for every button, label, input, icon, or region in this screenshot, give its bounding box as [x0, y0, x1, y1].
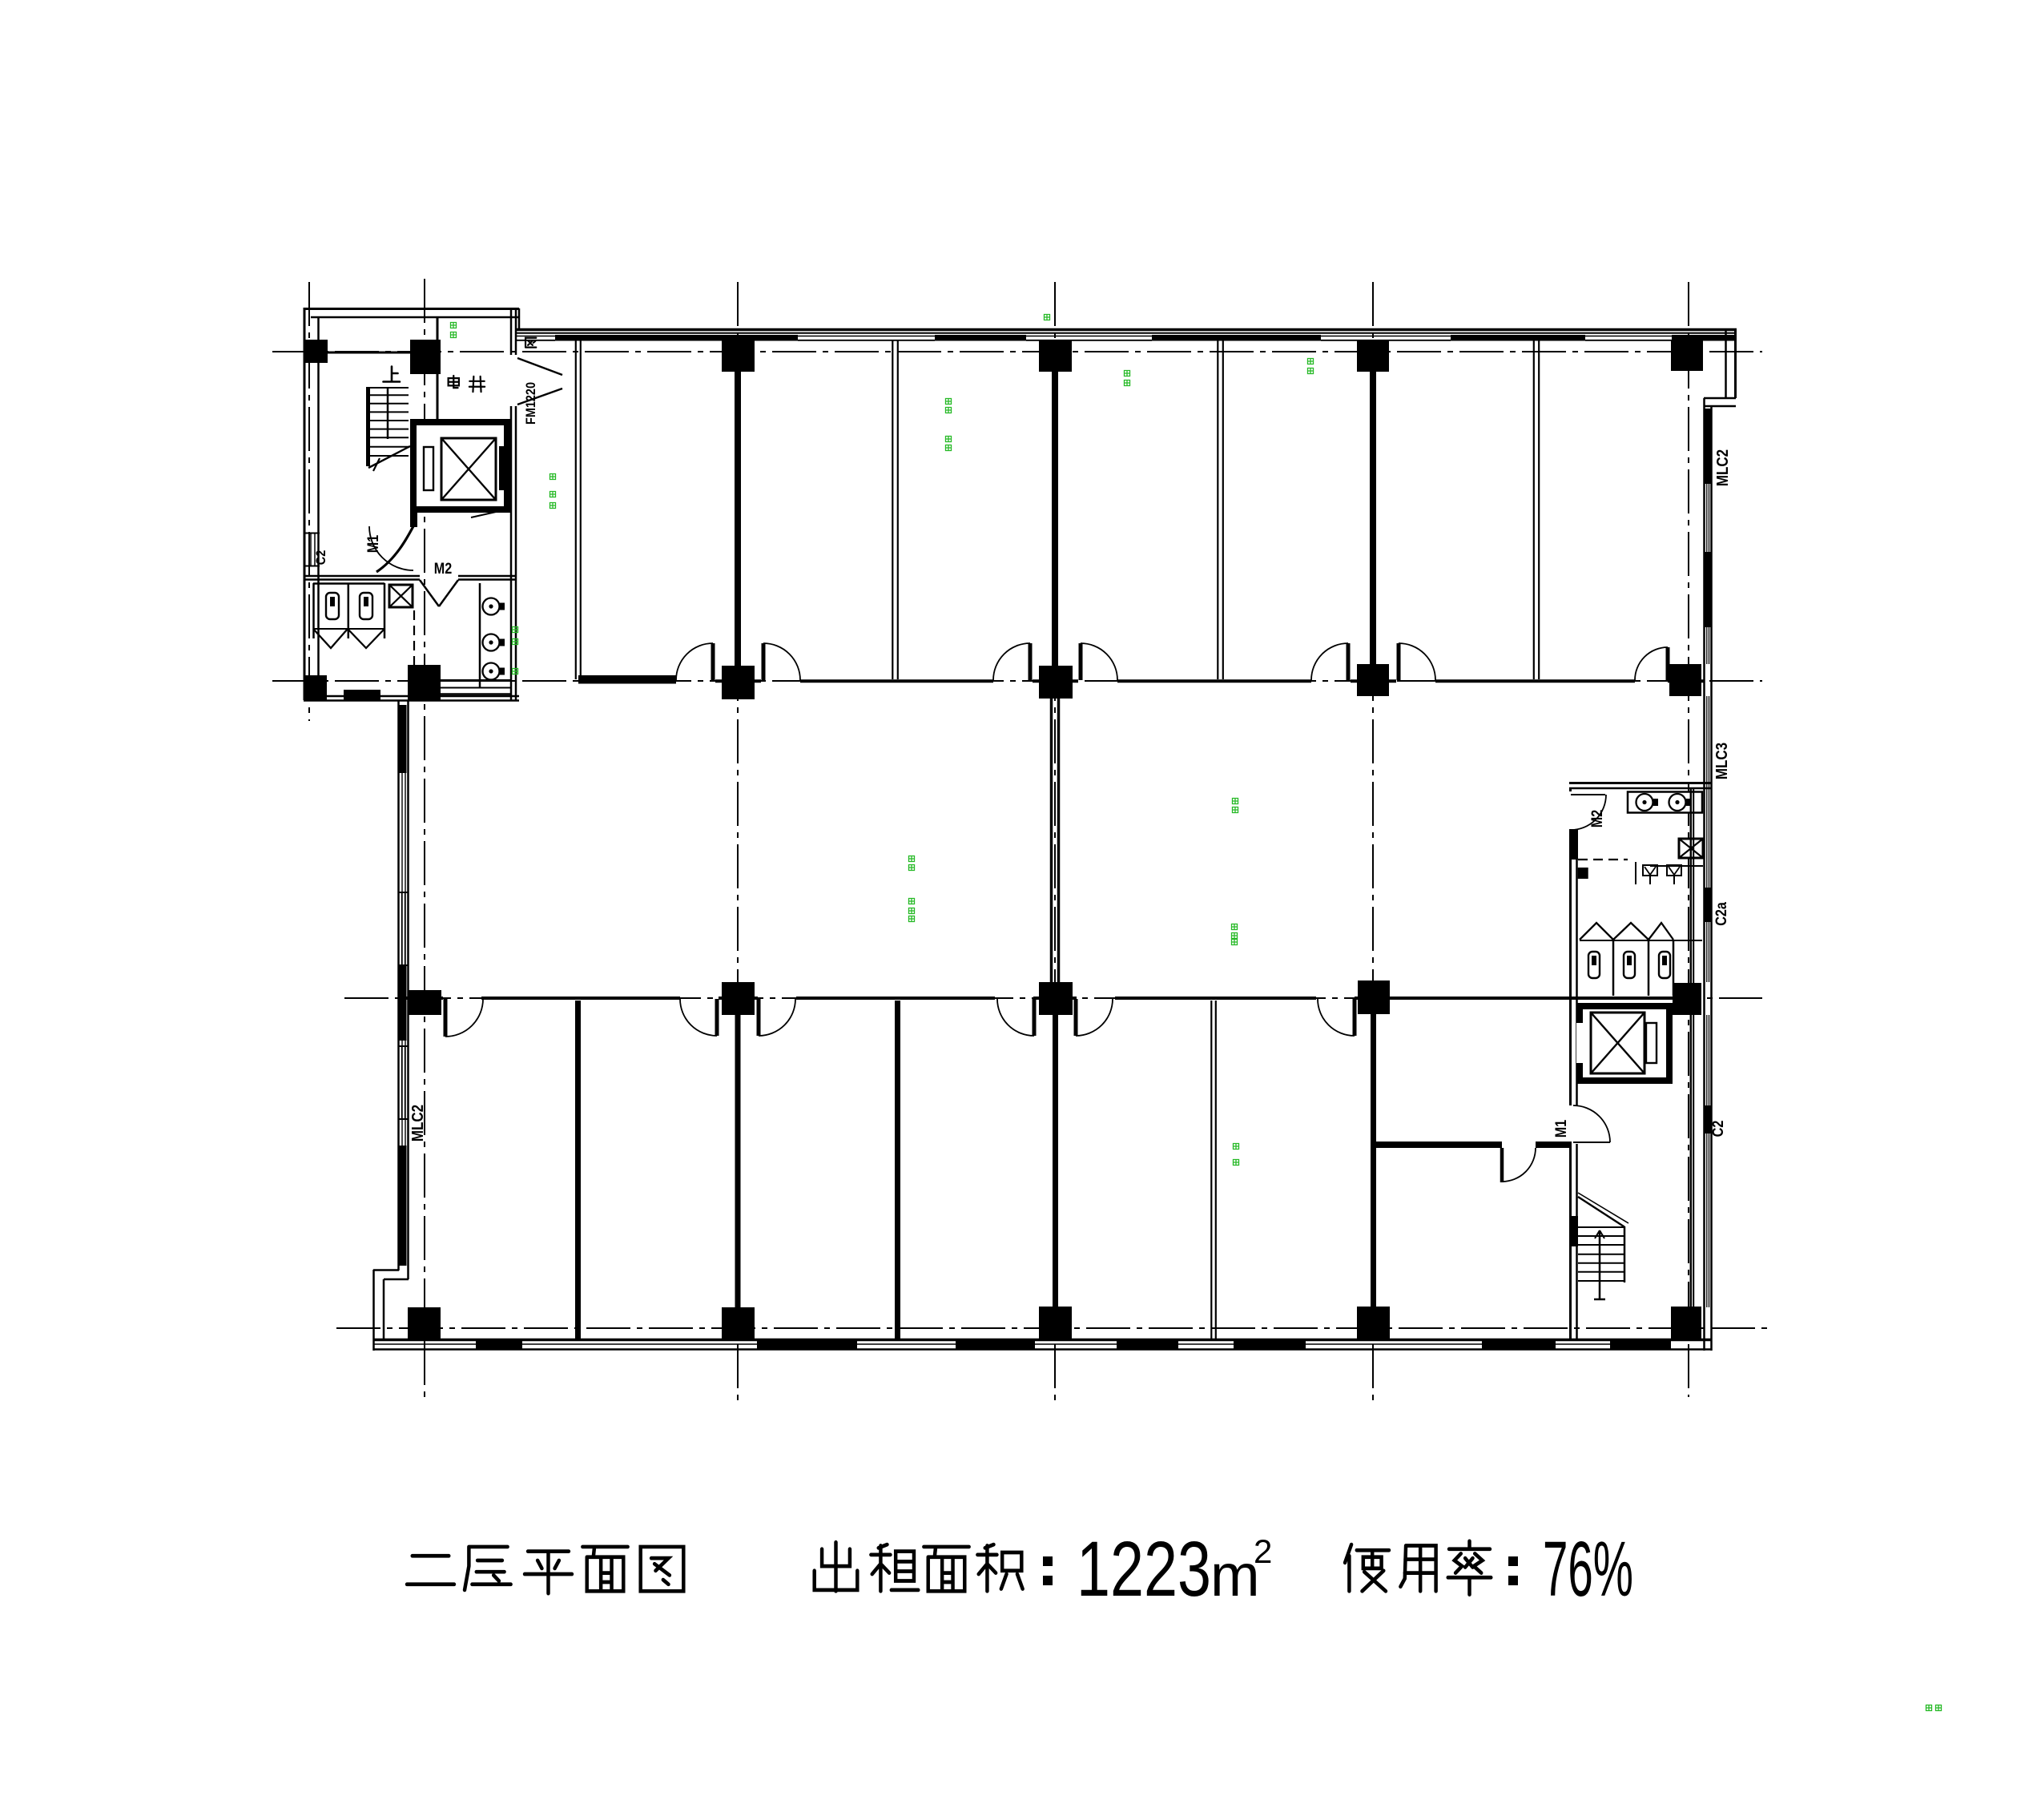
svg-text:76%: 76% [1543, 1525, 1633, 1613]
svg-text:M2: M2 [434, 560, 453, 578]
svg-text:C2: C2 [1709, 1121, 1727, 1137]
svg-text:C2a: C2a [1713, 902, 1730, 926]
svg-text:MLC2: MLC2 [1713, 449, 1732, 486]
svg-text:MLC3: MLC3 [1713, 743, 1731, 779]
svg-text:FM1220: FM1220 [524, 382, 538, 425]
svg-text:M2: M2 [1588, 810, 1606, 828]
svg-text:M1: M1 [1552, 1120, 1570, 1138]
svg-text:M1: M1 [364, 535, 382, 554]
svg-text:2: 2 [1254, 1532, 1272, 1570]
svg-text:MLC2: MLC2 [409, 1105, 427, 1142]
svg-text:1223: 1223 [1077, 1525, 1211, 1613]
svg-text:m: m [1210, 1542, 1260, 1609]
svg-text:C2: C2 [314, 550, 328, 566]
